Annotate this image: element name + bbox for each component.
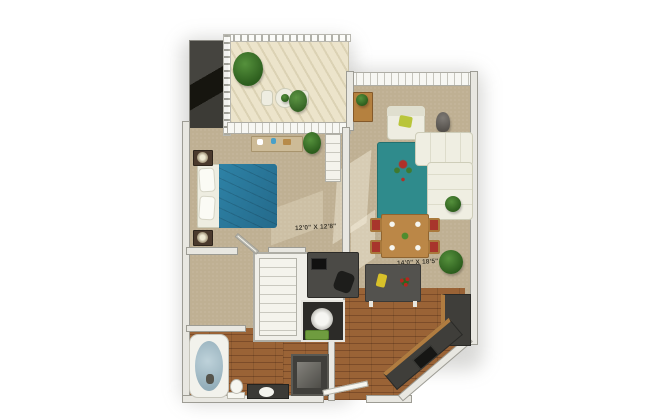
balcony-railing-top xyxy=(225,34,351,42)
bedroom-wardrobe-shelf xyxy=(325,134,341,182)
table-lamp xyxy=(197,232,208,243)
sofa-side-plant xyxy=(445,196,461,212)
island-decor-flowers xyxy=(397,275,413,289)
bedroom-plant xyxy=(303,132,321,154)
toilet-bowl xyxy=(230,379,243,394)
bathroom-top-wall xyxy=(187,326,245,331)
island-leg xyxy=(369,301,373,307)
computer-monitor xyxy=(311,258,327,270)
washer xyxy=(311,308,333,330)
balcony-patio-door-wall xyxy=(227,122,351,134)
island-leg xyxy=(413,301,417,307)
shower-glass xyxy=(297,362,321,388)
bed-comforter xyxy=(219,164,277,228)
dining-table xyxy=(381,214,429,258)
dresser-decor xyxy=(271,138,276,144)
bathtub-item xyxy=(206,374,214,384)
sectional-sofa-chaise xyxy=(415,132,473,166)
bistro-centerpiece-plant xyxy=(281,94,289,102)
bedroom-bottom-wall xyxy=(187,248,237,254)
linen-closet-shelves xyxy=(259,258,297,336)
dining-chair xyxy=(428,240,440,254)
dresser-decor xyxy=(257,139,263,145)
dresser-decor xyxy=(283,139,291,145)
kitchen-entry-mat xyxy=(305,330,329,340)
balcony-tree xyxy=(233,52,263,86)
floorplan-canvas: 12'0" X 12'8" 14'0" X 18'5" xyxy=(0,0,650,420)
dining-chair xyxy=(370,240,382,254)
bed-pillow xyxy=(198,167,216,192)
vanity-sink xyxy=(259,387,274,397)
bedroom-right-wall xyxy=(343,128,349,252)
balcony-railing-left xyxy=(223,34,231,136)
balcony-corner-plant xyxy=(289,90,307,112)
bistro-chair-left xyxy=(261,90,273,106)
living-room-window-wall xyxy=(349,72,477,86)
cat-figure xyxy=(436,112,450,132)
bed-pillow xyxy=(198,195,216,220)
dining-chair xyxy=(428,218,440,232)
armchair-back xyxy=(387,106,425,116)
plant-stand-plant xyxy=(356,94,368,106)
dining-chair xyxy=(370,218,382,232)
table-lamp xyxy=(197,152,208,163)
apartment-floorplan-3d: 12'0" X 12'8" 14'0" X 18'5" xyxy=(183,12,483,412)
dining-corner-bush xyxy=(439,250,463,274)
accent-pillow xyxy=(398,115,413,128)
